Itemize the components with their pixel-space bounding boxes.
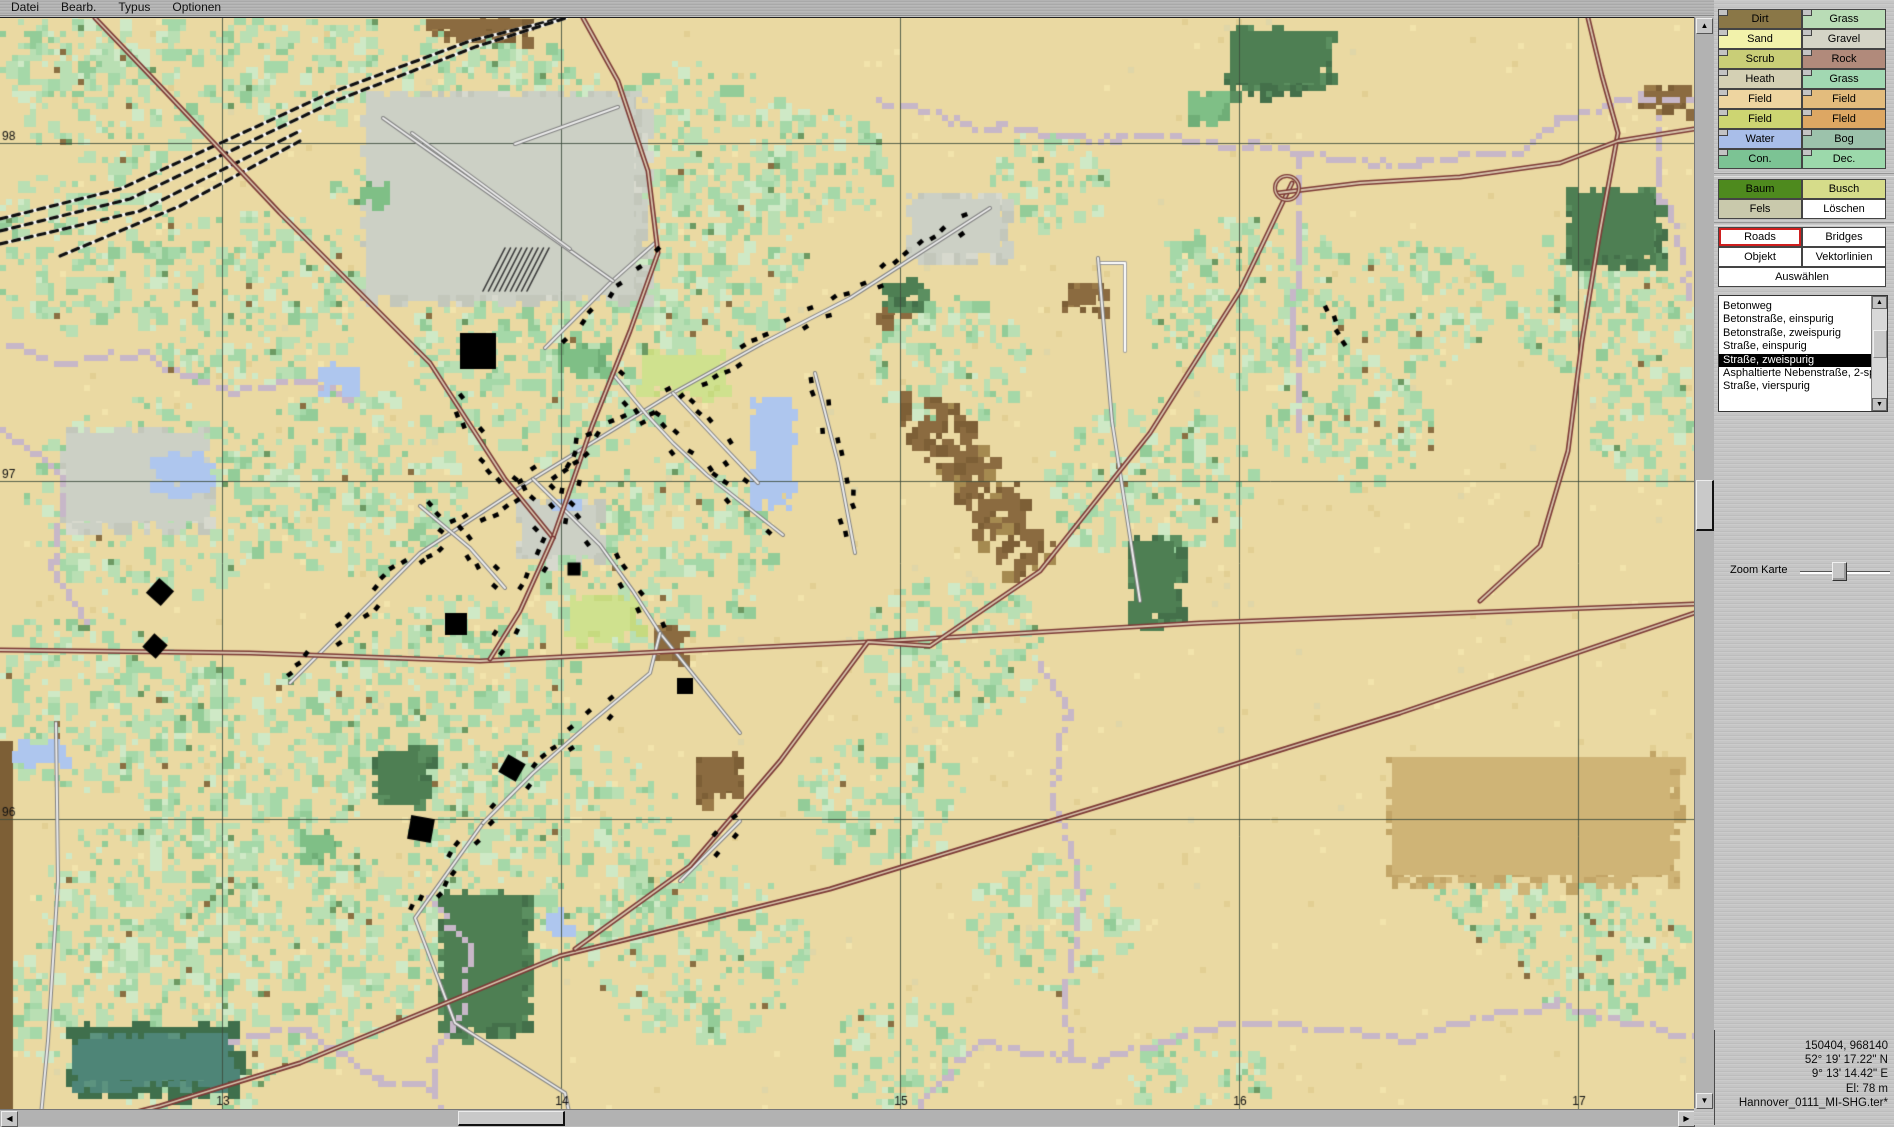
scroll-up-icon[interactable]: ▲ [1696,18,1713,34]
terrain-button-label: Bog [1834,133,1854,145]
cursor-elevation: El: 78 m [1716,1082,1888,1096]
terrain-button-label: Con. [1748,153,1771,165]
terrain-button-sand-2[interactable]: Sand [1718,29,1802,49]
terrain-button-rock-5[interactable]: Rock [1802,49,1886,69]
terrain-button-heath-6[interactable]: Heath [1718,69,1802,89]
notch-icon [1802,9,1812,16]
side-panel: DirtGrassSandGravelScrubRockHeathGrassFi… [1714,0,1894,1125]
notch-icon [1718,109,1728,116]
zoom-map-label: Zoom Karte [1730,564,1787,576]
notch-icon [1802,49,1812,56]
terrain-button-scrub-4[interactable]: Scrub [1718,49,1802,69]
zoom-slider-thumb[interactable] [1832,562,1847,581]
panel-edge-line [1714,1030,1715,1125]
list-scroll-thumb[interactable] [1873,330,1887,358]
terrain-button-label: Dec. [1833,153,1856,165]
terrain-button-label: Water [1746,133,1775,145]
horizontal-scroll-thumb[interactable] [458,1111,565,1126]
cursor-latitude: 52° 19' 17.22" N [1716,1053,1888,1067]
road-type-item-3[interactable]: Straße, einspurig [1719,340,1873,353]
panel-divider [1714,222,1894,226]
terrain-button-label: Scrub [1746,53,1775,65]
cursor-map-coords: 150404, 968140 [1716,1039,1888,1053]
notch-icon [1718,29,1728,36]
terrain-button-label: Sand [1747,33,1773,45]
mode-button-bridges[interactable]: Bridges [1802,227,1886,247]
status-block: 150404, 968140 52° 19' 17.22" N 9° 13' 1… [1716,1039,1888,1110]
terrain-button-label: Grass [1829,13,1858,25]
tool-button-löschen[interactable]: Löschen [1802,199,1886,219]
tool-button-fels[interactable]: Fels [1718,199,1802,219]
notch-icon [1802,69,1812,76]
map-viewport [0,17,1694,1109]
road-type-item-2[interactable]: Betonstraße, zweispurig [1719,327,1873,340]
list-scroll-down-icon[interactable]: ▼ [1872,398,1887,411]
panel-divider [1714,173,1894,177]
map-vertical-scrollbar[interactable]: ▲ ▼ [1694,17,1715,1108]
select-button[interactable]: Auswählen [1718,267,1886,287]
terrain-button-dirt-0[interactable]: Dirt [1718,9,1802,29]
menu-item-datei[interactable]: Datei [0,0,50,15]
map-canvas[interactable] [0,18,1694,1109]
notch-icon [1802,29,1812,36]
terrain-button-label: Rock [1831,53,1856,65]
current-filename: Hannover_0111_MI-SHG.ter* [1716,1096,1888,1110]
scrollbar-corner [1694,1109,1714,1125]
terrain-button-bog-13[interactable]: Bog [1802,129,1886,149]
mode-button-roads[interactable]: Roads [1718,227,1802,247]
terrain-button-field-10[interactable]: Field [1718,109,1802,129]
notch-icon [1718,149,1728,156]
notch-icon [1802,89,1812,96]
tool-button-baum[interactable]: Baum [1718,179,1802,199]
terrain-button-field-9[interactable]: Field [1802,89,1886,109]
terrain-button-field-8[interactable]: Field [1718,89,1802,109]
tool-button-busch[interactable]: Busch [1802,179,1886,199]
terrain-button-water-12[interactable]: Water [1718,129,1802,149]
notch-icon [1718,129,1728,136]
menu-item-optionen[interactable]: Optionen [161,0,232,15]
terrain-button-label: Field [1748,93,1772,105]
notch-icon [1718,69,1728,76]
list-scroll-up-icon[interactable]: ▲ [1872,296,1887,309]
terrain-button-gravel-3[interactable]: Gravel [1802,29,1886,49]
menu-bar: DateiBearb.TypusOptionen [0,0,1894,16]
terrain-button-grass-1[interactable]: Grass [1802,9,1886,29]
terrain-button-label: Dirt [1751,13,1768,25]
notch-icon [1802,149,1812,156]
scroll-down-icon[interactable]: ▼ [1696,1093,1713,1109]
notch-icon [1802,129,1812,136]
road-type-item-0[interactable]: Betonweg [1719,300,1873,313]
road-type-item-4[interactable]: Straße, zweispurig [1719,354,1873,367]
road-type-item-6[interactable]: Straße, vierspurig [1719,380,1873,393]
notch-icon [1718,49,1728,56]
menu-item-bearb[interactable]: Bearb. [50,0,107,15]
terrain-button-dec-15[interactable]: Dec. [1802,149,1886,169]
terrain-button-label: Gravel [1828,33,1860,45]
terrain-button-label: Grass [1829,73,1858,85]
menu-item-typus[interactable]: Typus [107,0,161,15]
terrain-button-label: Fleld [1832,113,1856,125]
terrain-button-fleld-11[interactable]: Fleld [1802,109,1886,129]
cursor-longitude: 9° 13' 14.42" E [1716,1067,1888,1081]
list-scrollbar[interactable]: ▲ ▼ [1871,296,1887,411]
notch-icon [1718,9,1728,16]
mode-button-vektorlinien[interactable]: Vektorlinien [1802,247,1886,267]
vertical-scroll-thumb[interactable] [1696,480,1714,531]
terrain-button-label: Field [1832,93,1856,105]
notch-icon [1718,89,1728,96]
map-horizontal-scrollbar[interactable]: ◀ ▶ [0,1109,1694,1126]
road-type-item-1[interactable]: Betonstraße, einspurig [1719,313,1873,326]
notch-icon [1802,109,1812,116]
road-type-item-5[interactable]: Asphaltierte Nebenstraße, 2-spurig [1719,367,1873,380]
terrain-button-label: Heath [1745,73,1774,85]
mode-button-objekt[interactable]: Objekt [1718,247,1802,267]
terrain-button-label: Field [1748,113,1772,125]
road-type-list[interactable]: BetonwegBetonstraße, einspurigBetonstraß… [1718,295,1888,412]
terrain-button-grass-7[interactable]: Grass [1802,69,1886,89]
terrain-button-con-14[interactable]: Con. [1718,149,1802,169]
